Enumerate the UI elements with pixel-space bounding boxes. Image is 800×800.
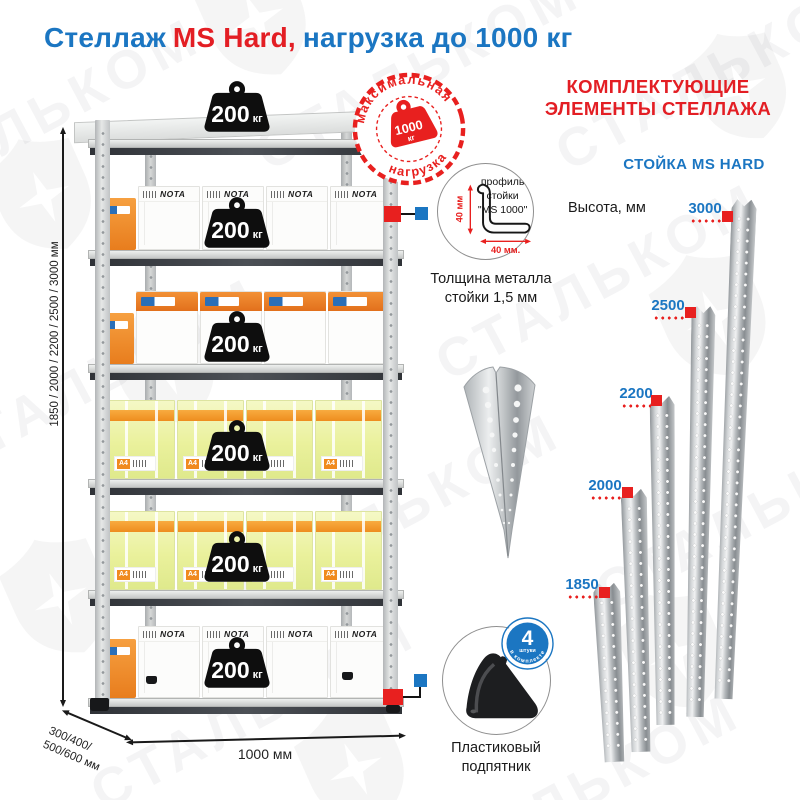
foot-caption-line2: подпятник [425,758,567,777]
marker-blue-profile [415,207,428,220]
post-height-label: 2500 [649,297,687,314]
dimension-height-options: 1850 / 2000 / 2200 / 2500 / 3000 мм [49,214,61,454]
post-height-marker [651,395,662,406]
dimension-line-height [62,131,64,703]
shelf-load-unit: кг [253,113,263,125]
barcode-icon [340,571,353,578]
post-height-dotline [653,316,685,320]
rack-foot [386,705,400,713]
barcode-icon [143,191,156,198]
profile-dim-vertical: 40 мм [454,196,464,223]
box-brand-label: NOTA [288,629,313,639]
dimension-depth-options: 300/400/ 500/600 мм [40,724,107,775]
weight-200kg-icon: 200кг [193,419,281,477]
components-header: КОМПЛЕКТУЮЩИЕ ЭЛЕМЕНТЫ СТЕЛЛАЖА [530,76,786,120]
shelf-load-value: 200 [211,551,249,577]
box-brand-label: NOTA [160,629,185,639]
kit-quantity-value: 4 [522,627,534,650]
paper-box-lid [136,291,198,364]
weight-200kg-icon: 200кг [193,196,281,254]
paper-pack-a4: A4 [108,400,175,479]
dimension-width-label: 1000 мм [215,746,315,762]
upright-3d-image [451,360,541,565]
weight-200kg-icon: 200кг [193,636,281,694]
pack-format-label: A4 [117,570,130,580]
thickness-line2: стойки 1,5 мм [420,289,562,308]
rack-shelf-beam [88,479,404,488]
paper-box-nota: NOTA [138,186,200,250]
profile-label-line3: "MS 1000" [474,204,531,218]
plastic-foot-caption: Пластиковый подпятник [425,739,567,776]
foot-caption-line1: Пластиковый [425,739,567,758]
marker-red-foot [383,689,403,705]
shelf-load-unit: кг [253,563,263,575]
shelf-load-unit: кг [253,669,263,681]
box-brand-label: NOTA [288,189,313,199]
barcode-icon [133,571,146,578]
shelf-load-value: 200 [211,440,249,466]
rack-foot [342,672,353,680]
page-title: СтеллажMS Hard,нагрузка до 1000 кг [44,22,572,54]
marker-blue-foot [414,674,427,687]
paper-box-lid [328,291,390,364]
post-height-dotline [621,404,651,408]
paper-pack-a4: A4 [108,511,175,590]
post-height-marker [722,211,733,222]
connector-line [403,696,421,698]
components-header-line1: КОМПЛЕКТУЮЩИЕ [530,76,786,98]
connector-line [400,213,416,215]
components-subheader: СТОЙКА MS HARD [610,156,778,173]
rack-foot [90,698,109,711]
post-height-marker [622,487,633,498]
weight-200kg-icon: 200кг [193,310,281,368]
barcode-icon [133,460,146,467]
box-brand-label: NOTA [160,189,185,199]
title-model: MS Hard, [173,22,296,53]
shelf-load-value: 200 [211,217,249,243]
box-brand-label: NOTA [352,629,377,639]
marker-red-profile [384,206,401,222]
shelf-load-value: 200 [211,101,249,127]
rack-shelf-beam [88,698,404,707]
post-height-label: 1850 [563,576,601,593]
barcode-icon [335,631,348,638]
rack-foot [146,676,157,684]
profile-label-line2: стойки [474,190,531,204]
pack-format-label: A4 [324,570,337,580]
post-height-marker [685,307,696,318]
thickness-line1: Толщина металла [420,270,562,289]
thickness-note: Толщина металла стойки 1,5 мм [420,270,562,307]
shelf-load-value: 200 [211,331,249,357]
post-height-marker [599,587,610,598]
post-height-dotline [567,595,599,599]
paper-box-nota: NOTA [138,626,200,698]
barcode-icon [335,191,348,198]
weight-200kg-icon: 200кг [193,80,281,138]
rack-shelf-beam [88,590,404,599]
shelf-load-value: 200 [211,657,249,683]
post-height-label: 2200 [617,385,655,402]
barcode-icon [340,460,353,467]
kit-quantity-unit: штуки [519,648,536,654]
post-height-dotline [590,496,622,500]
components-header-line2: ЭЛЕМЕНТЫ СТЕЛЛАЖА [530,98,786,120]
post-height-label: 2000 [586,477,624,494]
pack-format-label: A4 [324,459,337,469]
post-height-label: 3000 [686,200,724,217]
shelf-load-unit: кг [253,343,263,355]
rack-front-right-post [383,114,398,700]
weight-200kg-icon: 200кг [193,530,281,588]
title-product: Стеллаж [44,22,166,53]
profile-label-line1: профиль [474,176,531,190]
kit-quantity-badge: 4 штуки в комплекте [501,617,554,670]
post-height-dotline [690,219,722,223]
profile-label: профиль стойки "MS 1000" [474,176,531,217]
title-load: нагрузка до 1000 кг [303,22,573,53]
rack-front-left-post [95,120,110,705]
infographic-canvas: СТАЛЬКОМ СТАЛЬКОМ СТАЛЬКОМ СТАЛЬКОМ СТАЛ… [0,0,800,800]
shelf-load-unit: кг [253,229,263,241]
pack-format-label: A4 [117,459,130,469]
shelf-load-unit: кг [253,452,263,464]
height-column-label: Высота, мм [568,200,646,216]
paper-pack-a4: A4 [315,400,382,479]
profile-dim-horizontal: 40 мм. [491,245,520,255]
paper-pack-a4: A4 [315,511,382,590]
barcode-icon [143,631,156,638]
